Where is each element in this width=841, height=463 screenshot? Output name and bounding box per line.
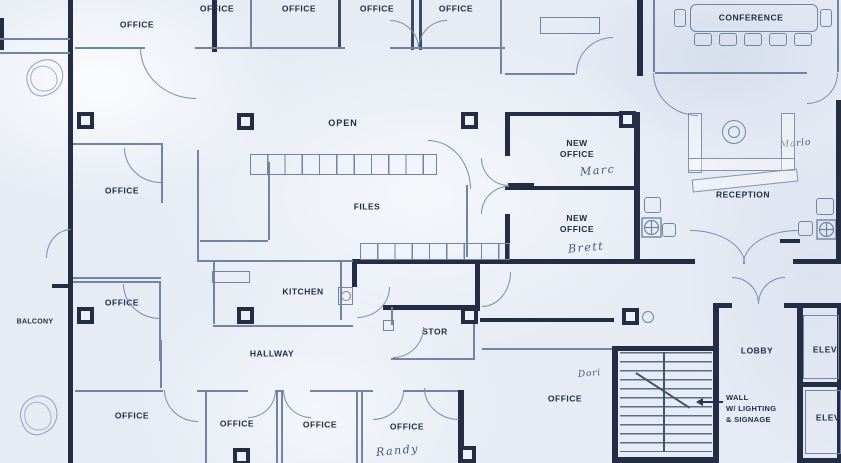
waiting-table xyxy=(662,223,676,237)
door-swing-arc xyxy=(807,73,838,104)
wall-line xyxy=(195,47,345,49)
structural-column xyxy=(461,307,478,324)
office-desk xyxy=(540,17,600,34)
door-swing-arc xyxy=(481,158,509,186)
wall-segment xyxy=(640,259,695,264)
room-label-hallway: HALLWAY xyxy=(250,348,294,359)
outline-box xyxy=(212,271,250,283)
wall-line xyxy=(73,281,161,283)
door-swing-arc xyxy=(393,327,424,358)
door-swing-arc xyxy=(140,48,196,99)
wall-segment xyxy=(793,259,841,264)
kitchen-sink-basin xyxy=(341,291,351,301)
reception-counter xyxy=(692,168,799,192)
waiting-chair xyxy=(816,198,834,215)
conference-chair xyxy=(820,9,832,27)
wall-line xyxy=(75,47,145,49)
wall-segment xyxy=(713,303,719,463)
structural-column xyxy=(237,307,254,324)
reception-chair xyxy=(728,126,740,138)
wall-line xyxy=(161,145,163,203)
room-label-office-top-2: OFFICE xyxy=(200,3,234,14)
room-label-office-top-1: OFFICE xyxy=(120,19,154,30)
door-swing-arc xyxy=(283,390,311,418)
door-swing-arc xyxy=(576,37,613,74)
door-swing-arc xyxy=(390,20,419,49)
handwritten-note-randy: Randy xyxy=(376,442,420,459)
wall-segment xyxy=(505,112,510,156)
wall-segment xyxy=(0,18,4,50)
staircase-stringer xyxy=(663,352,665,452)
wall-line xyxy=(482,348,612,350)
wall-line xyxy=(340,262,342,320)
wall-line xyxy=(213,325,353,327)
room-label-office-bottom-2: OFFICE xyxy=(220,418,254,429)
door-swing-arc xyxy=(124,148,161,183)
wall-segment xyxy=(797,382,841,387)
room-label-corner-office: OFFICE xyxy=(548,393,582,404)
wall-line xyxy=(250,0,252,48)
conference-chair xyxy=(719,33,737,46)
file-cabinet-run xyxy=(360,243,510,260)
floor-plan: OFFICE OFFICE OFFICE OFFICE OFFICE CONFE… xyxy=(0,0,841,463)
conference-chair xyxy=(674,9,686,27)
wall-segment xyxy=(352,259,357,287)
conference-chair xyxy=(769,33,787,46)
file-cabinet-run xyxy=(250,154,437,175)
door-swing-arc xyxy=(653,73,698,116)
waiting-table xyxy=(798,221,813,236)
structural-column xyxy=(237,113,254,130)
door-swing-arc xyxy=(248,390,276,418)
wall-line xyxy=(276,392,278,463)
door-swing-arc xyxy=(123,284,160,319)
room-label-office-left-1: OFFICE xyxy=(105,185,139,196)
room-label-new-office-1: NEW OFFICE xyxy=(560,138,594,160)
room-label-office-top-3: OFFICE xyxy=(282,3,316,14)
wall-line xyxy=(281,392,283,463)
door-swing-arc xyxy=(357,287,390,318)
wall-segment xyxy=(508,183,534,188)
plant-table-icon xyxy=(816,219,837,240)
waiting-chair xyxy=(644,197,661,213)
wall-segment xyxy=(52,284,70,288)
room-label-office-bottom-4: OFFICE xyxy=(390,421,424,432)
wall-line xyxy=(73,277,161,279)
wall-segment xyxy=(797,458,841,463)
conference-chair xyxy=(794,33,812,46)
wall-segment xyxy=(612,346,618,463)
handwritten-scribble xyxy=(14,390,63,439)
wall-line xyxy=(361,392,363,463)
wall-line xyxy=(200,240,268,242)
plant-table-icon xyxy=(641,217,662,238)
wall-segment xyxy=(637,0,643,76)
conference-chair xyxy=(694,33,712,46)
wall-segment xyxy=(480,318,614,322)
outline-box xyxy=(803,315,839,379)
door-swing-arc xyxy=(418,20,447,49)
wall-line xyxy=(310,390,373,392)
wall-line xyxy=(0,38,70,40)
structural-column xyxy=(233,448,250,463)
wall-line xyxy=(697,72,807,74)
wall-line xyxy=(505,73,575,75)
staircase-treads xyxy=(620,352,712,452)
wall-segment xyxy=(338,0,341,48)
wall-segment xyxy=(614,457,714,463)
wall-line xyxy=(837,0,839,72)
wall-line xyxy=(500,0,502,74)
room-label-balcony: BALCONY xyxy=(17,317,54,326)
door-swing-arc xyxy=(690,230,745,264)
door-swing-arc xyxy=(482,272,511,307)
door-swing-arc xyxy=(373,390,404,420)
wall-segment xyxy=(212,0,217,52)
outline-box xyxy=(805,390,841,454)
room-label-storage: STOR xyxy=(422,326,447,337)
door-swing-arc xyxy=(164,390,198,422)
handwritten-note-marc: Marc xyxy=(580,162,616,178)
wall-line xyxy=(73,143,163,145)
structural-column xyxy=(459,446,476,463)
wall-segment xyxy=(797,303,841,308)
door-swing-arc xyxy=(732,277,759,304)
wall-line xyxy=(197,150,199,260)
wall-line xyxy=(356,392,358,463)
wall-line xyxy=(205,392,207,463)
wall-line xyxy=(75,390,163,392)
room-label-open: OPEN xyxy=(328,118,358,130)
structural-column xyxy=(619,111,636,128)
wall-segment xyxy=(836,100,841,260)
wall-line xyxy=(197,260,353,262)
room-label-office-bottom-3: OFFICE xyxy=(303,419,337,430)
structural-column xyxy=(77,307,94,324)
wall-segment xyxy=(718,303,732,308)
wall-line xyxy=(653,0,655,72)
structural-column xyxy=(461,112,478,129)
door-swing-arc xyxy=(46,229,71,258)
wall-line xyxy=(0,52,70,54)
door-swing-arc xyxy=(424,388,459,420)
wall-segment xyxy=(475,259,480,311)
structural-column xyxy=(77,112,94,129)
handwritten-scribble xyxy=(21,54,69,101)
room-label-lobby: LOBBY xyxy=(741,345,773,356)
door-swing-arc xyxy=(428,140,471,189)
handwritten-note-brett: Brett xyxy=(568,239,605,255)
room-label-new-office-2: NEW OFFICE xyxy=(560,213,594,235)
door-swing-arc xyxy=(758,277,785,304)
structural-column xyxy=(622,308,639,325)
wall-segment xyxy=(614,346,716,351)
conference-table xyxy=(690,4,818,32)
wall-segment xyxy=(784,303,798,308)
room-label-office-top-4: OFFICE xyxy=(360,3,394,14)
room-label-office-top-5: OFFICE xyxy=(439,3,473,14)
column-marker xyxy=(642,311,654,323)
room-label-office-bottom-1: OFFICE xyxy=(115,410,149,421)
wall-line xyxy=(160,340,162,388)
room-label-reception: RECEPTION xyxy=(716,189,770,200)
door-swing-arc xyxy=(743,230,798,264)
room-label-files: FILES xyxy=(354,201,381,212)
wall-line xyxy=(391,358,475,360)
handwritten-note-dori: Dori xyxy=(578,368,602,380)
reception-desk xyxy=(688,158,795,171)
wall-lighting-signage-callout: WALL W/ LIGHTING & SIGNAGE xyxy=(726,393,776,426)
room-label-kitchen: KITCHEN xyxy=(282,286,323,297)
conference-chair xyxy=(744,33,762,46)
door-swing-arc xyxy=(481,186,509,214)
